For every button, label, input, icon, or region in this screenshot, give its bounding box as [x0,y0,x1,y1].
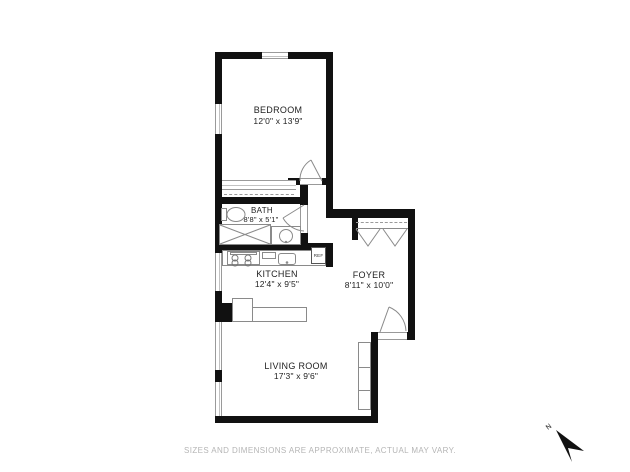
bath-label: BATH [251,206,273,215]
bedroom-closet-rod [224,194,294,195]
kitchen-sink [278,253,296,265]
bedroom-closet-slider [222,180,296,190]
wall-segment [215,52,262,59]
living-room-right-wall [371,340,378,423]
living-room-dims: 17'3" x 9'6" [274,372,318,381]
north-arrow: N [545,423,584,462]
shelf-unit [358,342,371,410]
bath-top-wall [215,197,300,204]
foyer-top-wall [333,209,415,218]
foyer-closet-line [356,228,408,229]
bifold-doors [356,229,407,246]
toilet-tank [221,208,227,221]
shelf-divider [359,390,370,391]
living-room-window-2 [215,382,222,416]
bedroom-top-window [262,52,288,59]
bottom-wall [215,416,378,423]
bath-door-opening [300,205,308,233]
refrigerator-label: REF [314,253,324,258]
foyer-right-wall [408,218,415,332]
bedroom-label: BEDROOM [254,106,303,115]
wall-segment [326,243,333,267]
kitchen-window [215,253,222,291]
floor-plan: REF BEDROOM 12'0" x 13'9" BATH 8'8" x 5'… [0,0,630,472]
entry-door-opening [378,332,407,340]
refrigerator: REF [311,247,326,264]
living-room-window-1 [215,316,222,370]
foyer-label: FOYER [353,271,386,280]
kitchen-label: KITCHEN [256,270,298,279]
shelf-divider [359,367,370,368]
bathtub [219,224,271,245]
foyer-closet-rod [356,222,407,223]
bedroom-left-window [215,104,222,134]
bath-dims: 8'8" x 5'1" [244,215,279,224]
island-pier [215,303,232,322]
disclaimer-text: SIZES AND DIMENSIONS ARE APPROXIMATE, AC… [0,446,630,455]
bedroom-dims: 12'0" x 13'9" [253,117,302,126]
dishwasher [262,252,276,259]
kitchen-island-end [232,298,253,322]
bedroom-door-opening [300,178,322,185]
stove-control-strip [230,252,257,255]
living-room-label: LIVING ROOM [264,362,327,371]
north-label: N [545,423,553,432]
wall-segment [215,370,222,382]
wall-segment [322,178,326,185]
entry-door [380,307,406,332]
bedroom-right-wall [326,52,333,218]
wall-segment [215,52,222,104]
toilet-bowl [227,208,245,222]
plan-linework: N [0,0,630,472]
bath-sink-basin [279,229,293,243]
kitchen-dims: 12'4" x 9'5" [255,280,299,289]
foyer-dims: 8'11" x 10'0" [345,281,394,290]
